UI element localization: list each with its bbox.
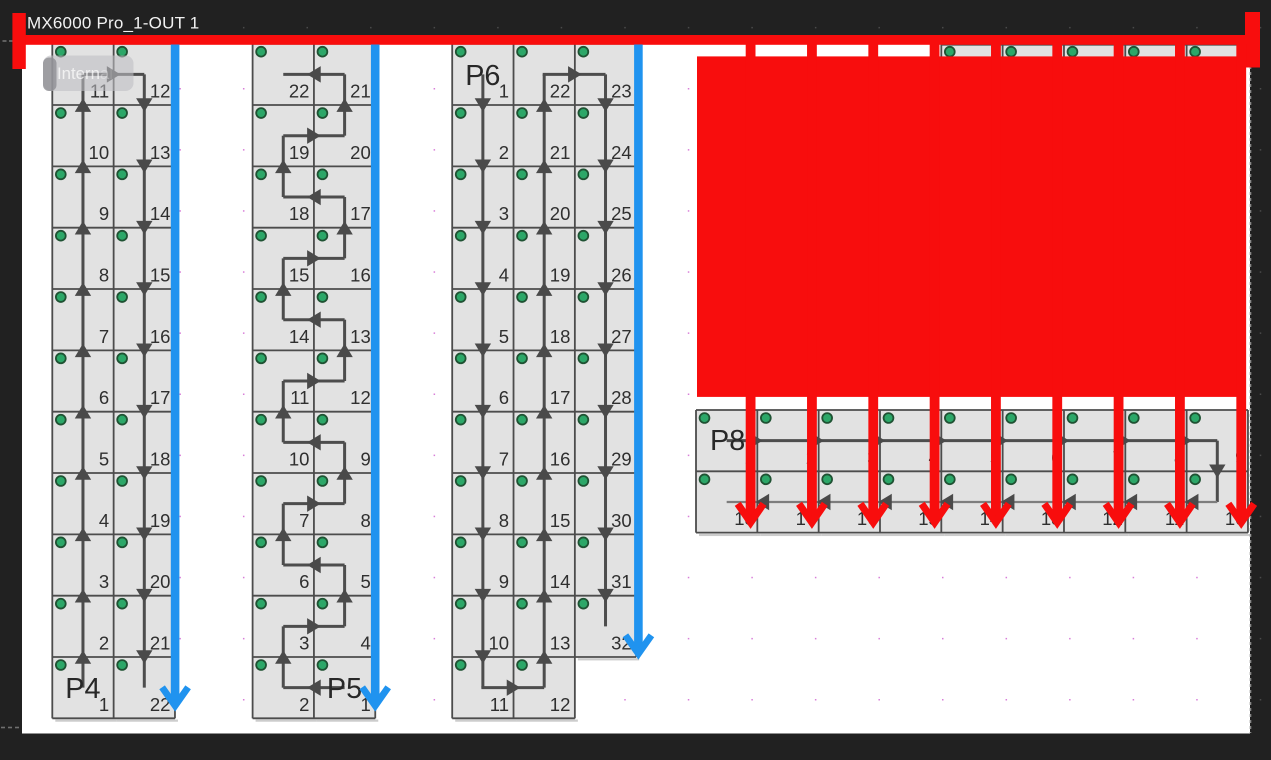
svg-text:3: 3	[99, 571, 109, 592]
svg-text:5: 5	[360, 571, 370, 592]
svg-text:14: 14	[550, 571, 571, 592]
svg-text:18: 18	[550, 326, 571, 347]
svg-text:7: 7	[499, 449, 509, 470]
svg-text:6: 6	[499, 387, 509, 408]
svg-text:Internal: Internal	[57, 64, 113, 83]
svg-text:15: 15	[150, 265, 171, 286]
svg-text:10: 10	[89, 142, 110, 163]
svg-text:28: 28	[611, 387, 632, 408]
svg-text:4: 4	[360, 633, 370, 654]
svg-text:7: 7	[299, 510, 309, 531]
svg-text:31: 31	[611, 571, 632, 592]
svg-text:10: 10	[289, 449, 310, 470]
svg-text:13: 13	[350, 326, 371, 347]
svg-text:26: 26	[611, 265, 632, 286]
svg-text:6: 6	[299, 571, 309, 592]
svg-text:27: 27	[611, 326, 632, 347]
svg-text:21: 21	[350, 81, 371, 102]
svg-text:12: 12	[350, 387, 371, 408]
svg-text:P5: P5	[327, 673, 362, 705]
svg-text:14: 14	[150, 203, 171, 224]
svg-text:3: 3	[499, 203, 509, 224]
svg-text:25: 25	[611, 203, 632, 224]
svg-text:5: 5	[99, 449, 109, 470]
svg-text:P8: P8	[710, 425, 745, 457]
svg-text:15: 15	[289, 265, 310, 286]
svg-text:29: 29	[611, 449, 632, 470]
svg-text:19: 19	[150, 510, 171, 531]
svg-text:P6: P6	[465, 60, 500, 92]
svg-text:2: 2	[499, 142, 509, 163]
svg-text:20: 20	[550, 203, 571, 224]
svg-text:4: 4	[499, 265, 509, 286]
svg-text:11: 11	[290, 387, 309, 408]
svg-text:16: 16	[550, 449, 571, 470]
svg-text:22: 22	[289, 81, 310, 102]
svg-text:21: 21	[550, 142, 571, 163]
svg-text:20: 20	[150, 571, 171, 592]
svg-text:19: 19	[289, 142, 310, 163]
svg-text:5: 5	[499, 326, 509, 347]
svg-text:8: 8	[499, 510, 509, 531]
svg-text:8: 8	[99, 265, 109, 286]
svg-text:18: 18	[289, 203, 310, 224]
svg-text:2: 2	[299, 694, 309, 715]
svg-text:17: 17	[350, 203, 371, 224]
svg-text:21: 21	[150, 633, 171, 654]
svg-text:24: 24	[611, 142, 632, 163]
svg-text:9: 9	[499, 571, 509, 592]
svg-text:9: 9	[360, 449, 370, 470]
svg-text:14: 14	[289, 326, 310, 347]
svg-text:4: 4	[99, 510, 109, 531]
svg-text:15: 15	[550, 510, 571, 531]
svg-text:12: 12	[150, 81, 171, 102]
svg-text:16: 16	[350, 265, 371, 286]
svg-text:2: 2	[99, 633, 109, 654]
svg-text:17: 17	[150, 387, 171, 408]
svg-text:17: 17	[550, 387, 571, 408]
svg-text:19: 19	[550, 265, 571, 286]
svg-text:MX6000 Pro_1-OUT 1: MX6000 Pro_1-OUT 1	[27, 14, 199, 33]
svg-text:3: 3	[299, 633, 309, 654]
svg-text:13: 13	[550, 633, 571, 654]
svg-text:12: 12	[550, 694, 571, 715]
svg-text:7: 7	[99, 326, 109, 347]
svg-text:8: 8	[360, 510, 370, 531]
svg-text:16: 16	[150, 326, 171, 347]
svg-text:22: 22	[550, 81, 571, 102]
svg-text:18: 18	[150, 449, 171, 470]
svg-text:9: 9	[99, 203, 109, 224]
svg-text:P4: P4	[65, 673, 100, 705]
svg-text:6: 6	[99, 387, 109, 408]
svg-text:10: 10	[488, 633, 509, 654]
svg-text:23: 23	[611, 81, 632, 102]
svg-text:13: 13	[150, 142, 171, 163]
svg-text:11: 11	[490, 694, 509, 715]
svg-text:20: 20	[350, 142, 371, 163]
svg-text:30: 30	[611, 510, 632, 531]
